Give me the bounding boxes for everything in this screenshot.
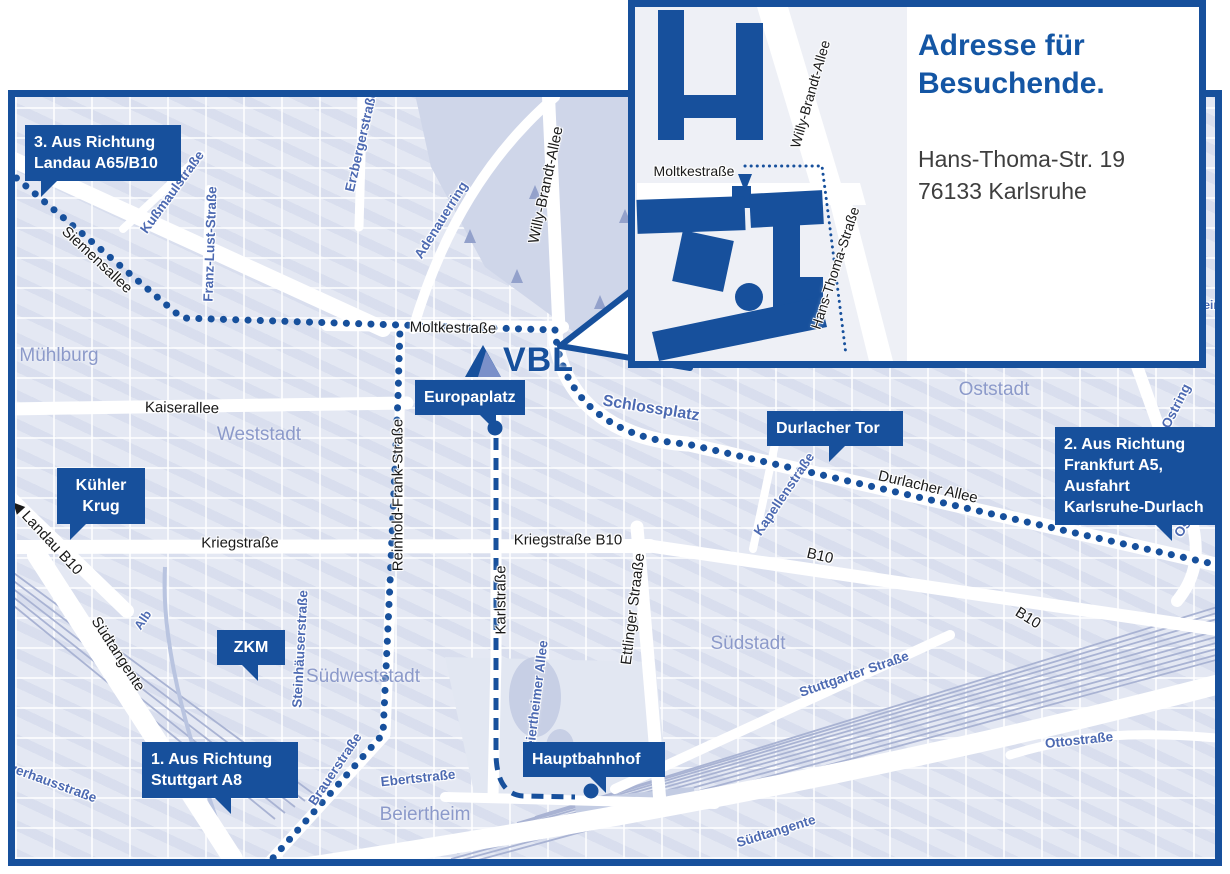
callout-pointer xyxy=(214,797,231,814)
callout-pointer xyxy=(41,180,58,197)
callout-hauptbahnhof: Hauptbahnhof xyxy=(523,742,665,777)
street-label: Steinhäuserstraße xyxy=(289,590,310,708)
street-label: Willy-Brandt-Allee xyxy=(787,38,833,149)
street-label: Ebertstraße xyxy=(380,767,456,790)
street-label: Karlstraße xyxy=(493,565,510,634)
callout-line: 1. Aus Richtung xyxy=(151,749,289,770)
callout-line: Frankfurt A5, xyxy=(1064,455,1215,476)
street-label: Franz-Lust-Straße xyxy=(200,186,219,302)
callout-line: ZKM xyxy=(226,637,276,658)
karlsruhe-directions-map: SiemensalleeMoltkestraßeKaiseralleeKrieg… xyxy=(0,0,1230,874)
street-label: Kaiserallee xyxy=(145,399,220,417)
street-label: Reinhold-Frank-Straße xyxy=(390,419,407,572)
street-label: Adenauerring xyxy=(411,179,470,261)
vbl-logo: VBL xyxy=(465,339,585,377)
street-label: Hans-Thoma-Straße xyxy=(808,205,863,331)
street-label: Beiertheimer Allee xyxy=(521,639,550,758)
street-label: Ostring xyxy=(1158,381,1193,431)
callout-frankfurt: 2. Aus RichtungFrankfurt A5,AusfahrtKarl… xyxy=(1055,427,1215,525)
street-label: Siemensallee xyxy=(58,223,135,297)
callout-pointer xyxy=(829,445,846,462)
district-label: Beiertheim xyxy=(380,804,471,826)
street-label: Ettlinger Straaße xyxy=(618,552,649,666)
callout-pointer xyxy=(241,664,258,681)
callout-line: Ausfahrt xyxy=(1064,476,1215,497)
callout-pointer xyxy=(589,776,606,793)
address-street: Hans-Thoma-Str. 19 xyxy=(918,143,1125,175)
callout-pointer xyxy=(70,523,87,540)
street-label: Kriegstraße B10 xyxy=(514,532,622,549)
street-label: B10 xyxy=(805,545,835,568)
callout-zkm: ZKM xyxy=(217,630,285,665)
callout-pointer xyxy=(1155,524,1172,541)
callout-durlacher-tor: Durlacher Tor xyxy=(767,411,903,446)
district-label: Südweststadt xyxy=(306,666,420,688)
vbl-triangle-icon xyxy=(465,343,503,377)
street-label: Erzbergerstraße xyxy=(342,97,380,193)
callout-landau: 3. Aus RichtungLandau A65/B10 xyxy=(25,125,181,181)
callout-stuttgart: 1. Aus RichtungStuttgart A8 xyxy=(142,742,298,798)
callout-line: Durlacher Tor xyxy=(776,418,894,439)
street-label: Schlossplatz xyxy=(601,392,700,425)
callout-line: Hauptbahnhof xyxy=(532,749,656,770)
inset-title-line-1: Adresse für xyxy=(918,27,1105,65)
district-label: Weststadt xyxy=(217,424,301,446)
inset-title-line-2: Besuchende. xyxy=(918,65,1105,103)
street-label: Kapellenstraße xyxy=(751,450,818,539)
street-label: Durlacher Allee xyxy=(877,467,980,506)
callout-line: Krug xyxy=(66,496,136,517)
callout-line: Europaplatz xyxy=(424,387,516,408)
callout-line: Karlsruhe-Durlach xyxy=(1064,497,1215,518)
callout-line: 2. Aus Richtung xyxy=(1064,434,1215,455)
address-city: 76133 Karlsruhe xyxy=(918,175,1125,207)
vbl-logo-text: VBL xyxy=(503,343,574,377)
street-label: Brauerstraße xyxy=(305,730,364,808)
visitor-address-inset: MoltkestraßeWilly-Brandt-AlleeHans-Thoma… xyxy=(628,0,1206,368)
street-label: B10 xyxy=(1012,604,1044,633)
street-label: Moltkestraße xyxy=(654,163,735,179)
street-label: Stuttgarter Straße xyxy=(797,648,910,700)
district-label: Südstadt xyxy=(711,633,786,655)
callout-line: Stuttgart A8 xyxy=(151,770,289,791)
street-label: Willy-Brandt-Allee xyxy=(525,125,566,245)
callout-line: 3. Aus Richtung xyxy=(34,132,172,153)
district-label: Mühlburg xyxy=(19,345,98,367)
street-label: Südtangente xyxy=(735,812,818,850)
street-label: Ottostraße xyxy=(1044,729,1113,751)
callout-pointer xyxy=(479,414,496,431)
inset-title: Adresse für Besuchende. xyxy=(918,27,1105,103)
district-label: Oststadt xyxy=(959,379,1030,401)
callout-europaplatz: Europaplatz xyxy=(415,380,525,415)
callout-line: Kühler xyxy=(66,475,136,496)
street-label: Pulverhausstraße xyxy=(15,753,99,806)
visitor-address: Hans-Thoma-Str. 19 76133 Karlsruhe xyxy=(918,143,1125,207)
callout-kuehler-krug: KühlerKrug xyxy=(57,468,145,524)
callout-line: Landau A65/B10 xyxy=(34,153,172,174)
street-label: Moltkestraße xyxy=(410,319,497,338)
street-label: Kriegstraße xyxy=(201,535,279,552)
street-label: Alb xyxy=(132,608,155,633)
